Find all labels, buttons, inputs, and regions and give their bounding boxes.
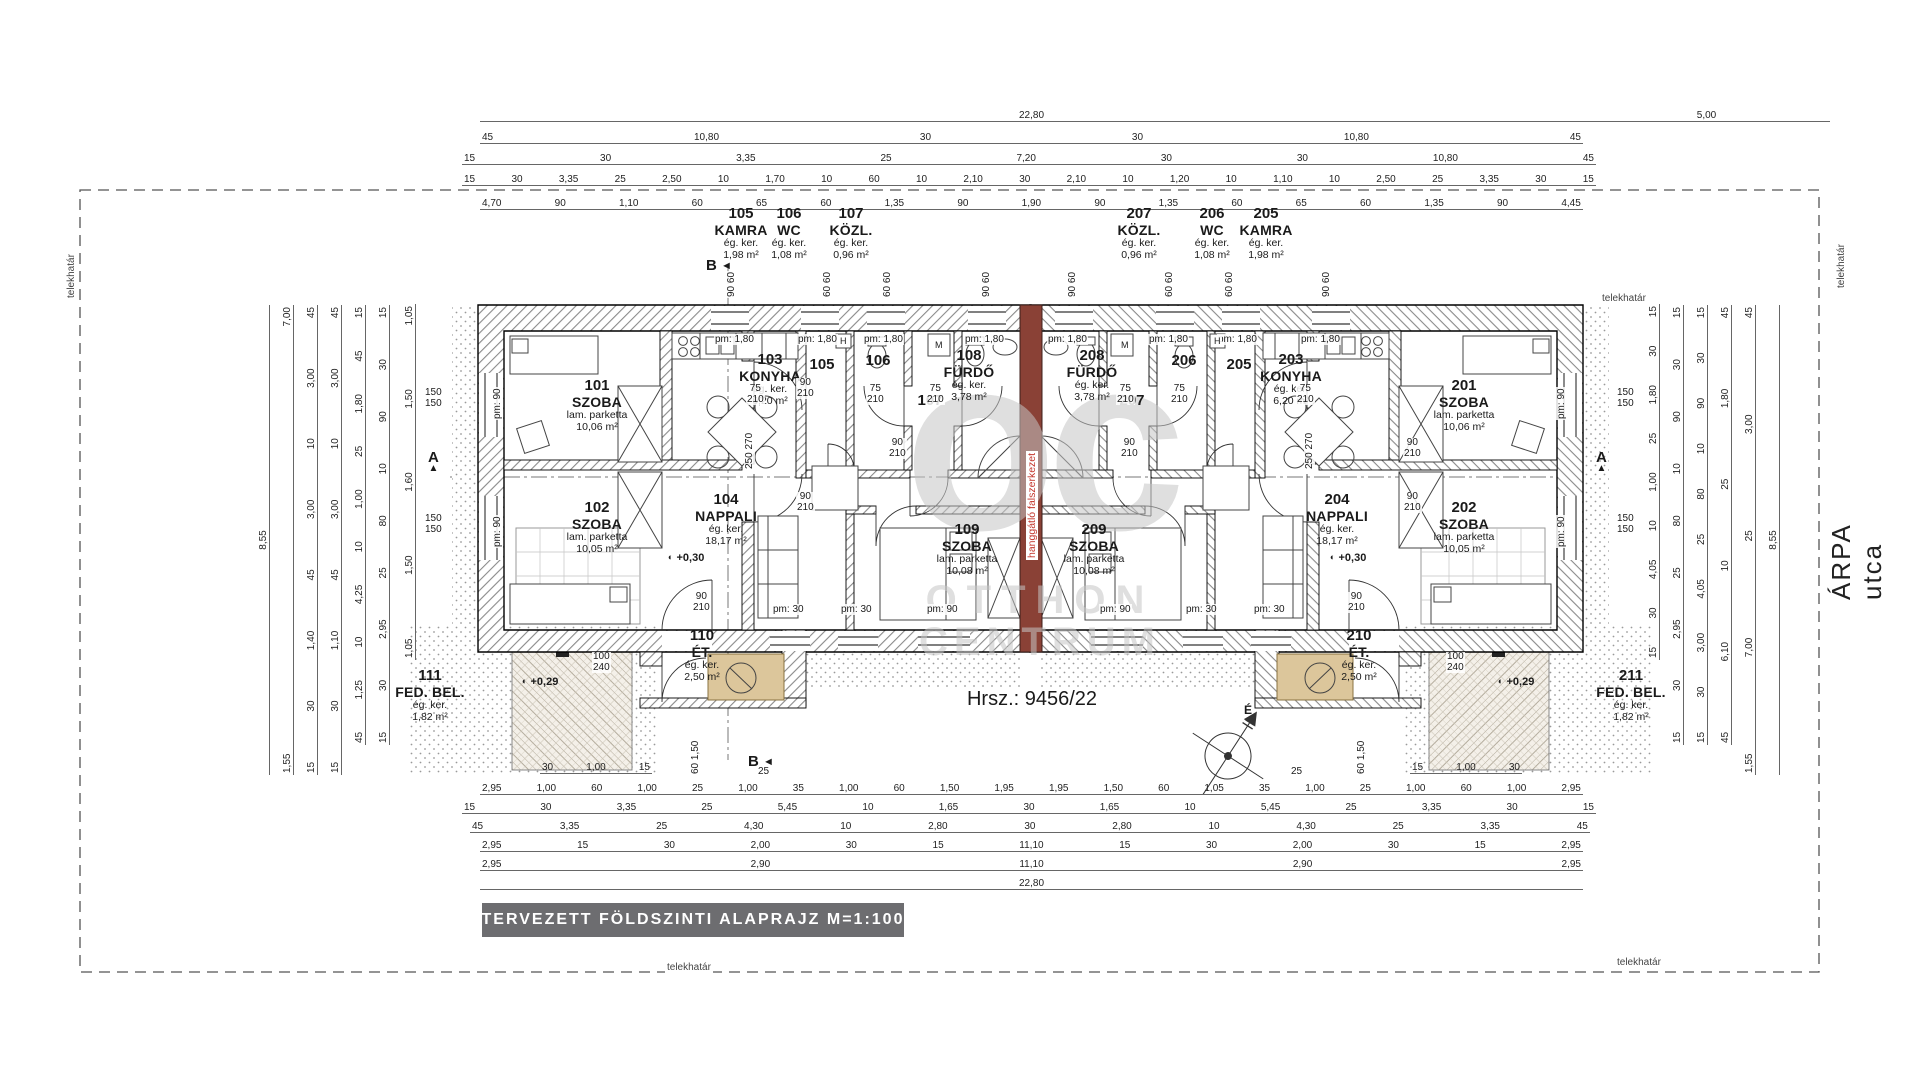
- dim-value: 35: [791, 783, 806, 794]
- level-mark: ◐ +0,30: [668, 552, 704, 564]
- dim-value: 45: [1744, 305, 1755, 320]
- dim-value: 30: [378, 678, 389, 693]
- level-mark: ◐ +0,29: [522, 676, 558, 688]
- dim-value: 1,00: [584, 762, 607, 773]
- door-size: 75210: [866, 384, 885, 405]
- dim-col-left-2: 7,001,55: [280, 305, 294, 775]
- door-size: 90210: [888, 438, 907, 459]
- dim-value: 1,80: [354, 392, 365, 415]
- dim-value: 2,95: [1672, 617, 1683, 640]
- dim-value: 90: [1092, 198, 1107, 209]
- dim-value: 4,25: [354, 583, 365, 606]
- parapet-tag: pm: 1,80: [1047, 334, 1088, 345]
- dim-value: 60: [690, 198, 705, 209]
- dim-value: 11,10: [1017, 859, 1045, 870]
- dim-col-right-5: 453,00257,001,55: [1742, 305, 1756, 775]
- dim-value: 1,70: [763, 174, 786, 185]
- dim-value: 25: [878, 153, 893, 164]
- dim-row-top-street: 5,00: [1583, 108, 1830, 122]
- parapet-tag: pm: 1,80: [797, 334, 838, 345]
- dim-value: 1,60: [404, 470, 415, 493]
- dim-value: 30: [1696, 685, 1707, 700]
- dim-value: 45: [354, 349, 365, 364]
- dim-value: 15: [354, 305, 365, 320]
- room-label-204: 204NAPPALI ég. ker.18,17 m²: [1306, 492, 1368, 548]
- parapet-tag: pm: 90: [1556, 387, 1567, 420]
- dim-value: 5,45: [776, 802, 799, 813]
- dim-value: 60: [1459, 783, 1474, 794]
- boundary-label: telekhatár: [1600, 293, 1648, 304]
- dim-value: 10: [354, 539, 365, 554]
- parapet-tag: pm: 1,80: [1300, 334, 1341, 345]
- dim-value: 1,20: [1168, 174, 1191, 185]
- door-size: 90210: [1403, 438, 1422, 459]
- dim-row-bottom-1: 2,951,00601,00251,00351,00601,501,951,95…: [480, 781, 1583, 795]
- dim-value: 10: [1696, 441, 1707, 456]
- room-chip-205: 205: [1226, 356, 1251, 373]
- dim-value: 30: [1672, 678, 1683, 693]
- dim-value: 3,35: [1478, 174, 1501, 185]
- dim-value: 10: [306, 436, 317, 451]
- dim-value: 10,80: [692, 132, 721, 143]
- dim-value: 15: [1648, 645, 1659, 660]
- dim-value: 10: [1207, 821, 1222, 832]
- table-dim: 250 270: [744, 432, 755, 470]
- room-label-208: 208FÜRDŐ ég. ker.3,78 m²: [1067, 348, 1118, 404]
- dim-value: 30: [598, 153, 613, 164]
- dim-value: 1,55: [1744, 752, 1755, 775]
- door-size: 90210: [1120, 438, 1139, 459]
- dim-value: 25: [654, 821, 669, 832]
- dim-value: 1,50: [404, 387, 415, 410]
- dim-value: 7,00: [1744, 636, 1755, 659]
- dim-value: 90: [1672, 409, 1683, 424]
- dim-value: 45: [1568, 132, 1583, 143]
- dim-value: 1,50: [938, 783, 961, 794]
- dim-value: 3,00: [1744, 412, 1755, 435]
- dim-value: 2,80: [926, 821, 949, 832]
- dim-value: 15: [378, 730, 389, 745]
- appliance-m: M: [934, 340, 944, 350]
- dim-value: 10: [914, 174, 929, 185]
- parapet-tag: pm: 1,80: [714, 334, 755, 345]
- dim-value: 15: [462, 174, 477, 185]
- dim-value: 30: [1648, 605, 1659, 620]
- dim-value: 30: [1130, 132, 1145, 143]
- dim-col-right-4: 451,8025106,1045: [1718, 305, 1732, 745]
- dim-value: 25: [1358, 783, 1373, 794]
- boundary-label: telekhatár: [665, 962, 713, 973]
- dim-row-top-5: 4,70901,106065601,35901,90901,356065601,…: [480, 196, 1583, 210]
- dim-value: 8,55: [258, 528, 269, 551]
- dim-value: 60: [1156, 783, 1171, 794]
- dim-value: 15: [462, 153, 477, 164]
- parapet-tag: pm: 30: [1253, 604, 1286, 615]
- dim-value: 2,95: [480, 783, 503, 794]
- parapet-tag: pm: 90: [492, 387, 503, 420]
- window-dim-pair: 90 60: [726, 271, 737, 298]
- dim-col-right-2: 1530901080252,953015: [1670, 305, 1684, 745]
- dim-value: 1,10: [330, 629, 341, 652]
- dim-value: 60: [1358, 198, 1373, 209]
- top-label-107: 107KÖZL. ég. ker.0,96 m²: [830, 206, 873, 262]
- window-size: 150150: [424, 388, 443, 409]
- dim-float: 25: [1290, 766, 1303, 777]
- dim-value: 1,00: [736, 783, 759, 794]
- dim-value: 15: [931, 840, 946, 851]
- dim-value: 45: [1581, 153, 1596, 164]
- north-compass: [1168, 690, 1292, 818]
- dim-value: 1,00: [1404, 783, 1427, 794]
- window-dim-pair: 60 60: [1164, 271, 1175, 298]
- dim-value: 2,50: [660, 174, 683, 185]
- dim-value: 1,00: [1505, 783, 1528, 794]
- dim-value: 25: [613, 174, 628, 185]
- dim-value: 1,25: [354, 678, 365, 701]
- dim-value: 2,80: [1110, 821, 1133, 832]
- drawing-title: TERVEZETT FÖLDSZINTI ALAPRAJZ M=1:100: [482, 903, 904, 937]
- dim-value: 6,10: [1720, 640, 1731, 663]
- parapet-tag: pm: 30: [772, 604, 805, 615]
- dim-row-top-total: 22,80: [480, 108, 1583, 122]
- door-size: 100240: [592, 652, 611, 673]
- section-marker-a-left: A▲: [428, 450, 439, 473]
- dim-value: 4,30: [1294, 821, 1317, 832]
- dim-value: 30: [1505, 802, 1520, 813]
- dim-value: 10: [1672, 461, 1683, 476]
- dim-value: 1,40: [306, 629, 317, 652]
- dim-value: 15: [575, 840, 590, 851]
- room-label-104: 104NAPPALI ég. ker.18,17 m²: [695, 492, 757, 548]
- step-dim: 60 1,50: [690, 740, 701, 775]
- parapet-tag: pm: 1,80: [1217, 334, 1258, 345]
- floor-plan-canvas: oc OTTHON CENTRUM 101SZOBA lam. parketta…: [0, 0, 1920, 1070]
- door-size: 75210: [926, 384, 945, 405]
- dim-value: 15: [1117, 840, 1132, 851]
- dim-value: 30: [540, 762, 555, 773]
- dim-value: 1,05: [404, 637, 415, 660]
- dim-value: 3,00: [306, 366, 317, 389]
- dim-value: 45: [480, 132, 495, 143]
- dim-value: 15: [378, 305, 389, 320]
- dim-value: 1,50: [1102, 783, 1125, 794]
- dim-value: 90: [955, 198, 970, 209]
- level-mark: ◐ +0,29: [1498, 676, 1534, 688]
- dim-value: 30: [1696, 350, 1707, 365]
- dim-row-bottom-5: 2,952,9011,102,902,95: [480, 857, 1583, 871]
- section-marker-b-top: B ◄: [706, 258, 732, 273]
- room-chip-106: 106: [865, 352, 890, 369]
- dim-value: 30: [1533, 174, 1548, 185]
- dim-col-right-6: 8,55: [1766, 305, 1780, 775]
- window-size: 150150: [1616, 388, 1635, 409]
- dim-value: 10,80: [1431, 153, 1460, 164]
- parapet-tag: pm: 1,80: [1148, 334, 1189, 345]
- dim-value: 2,00: [749, 840, 772, 851]
- dim-value: 15: [1672, 730, 1683, 745]
- dim-value: 1,35: [883, 198, 906, 209]
- dim-value: 15: [1473, 840, 1488, 851]
- dim-row-top-2: 4510,80303010,8045: [480, 130, 1583, 144]
- dim-value: 1,95: [992, 783, 1015, 794]
- dim-value: 15: [637, 762, 652, 773]
- room-label-110: 110ÉT. ég. ker.2,50 m²: [684, 628, 720, 684]
- boundary-label: telekhatár: [1615, 957, 1663, 968]
- dim-value: 1,35: [1422, 198, 1445, 209]
- room-label-102: 102SZOBA lam. parketta10,05 m²: [567, 500, 628, 556]
- dim-value: 15: [1581, 802, 1596, 813]
- parapet-tag: pm: 1,80: [964, 334, 1005, 345]
- dim-value: 3,00: [330, 366, 341, 389]
- window-dim-pair: 60 60: [1224, 271, 1235, 298]
- dim-value: 2,10: [961, 174, 984, 185]
- dim-value: 10: [838, 821, 853, 832]
- dim-col-left-3: 453,00103,00451,403015: [304, 305, 318, 775]
- dim-value: 25: [1720, 477, 1731, 492]
- dim-value: 15: [1648, 304, 1659, 319]
- dim-value: 30: [1672, 357, 1683, 372]
- dim-value: 30: [1648, 344, 1659, 359]
- dim-value: 30: [509, 174, 524, 185]
- dim-value: 10,80: [1342, 132, 1371, 143]
- dim-value: 3,00: [1696, 631, 1707, 654]
- dim-value: 3,00: [330, 498, 341, 521]
- room-label-202: 202SZOBA lam. parketta10,05 m²: [1434, 500, 1495, 556]
- door-size: 75210: [1170, 384, 1189, 405]
- dim-value: 4,45: [1559, 198, 1582, 209]
- dim-row-bottom-4: 2,9515302,00301511,1015302,0030152,95: [480, 838, 1583, 852]
- dim-value: 15: [462, 802, 477, 813]
- dim-value: 1,05: [1202, 783, 1225, 794]
- dim-value: 10: [1182, 802, 1197, 813]
- dim-value: 10: [354, 635, 365, 650]
- dim-value: 25: [354, 444, 365, 459]
- top-label-205: 205KAMRA ég. ker.1,98 m²: [1239, 206, 1292, 262]
- dim-value: 1,00: [1648, 470, 1659, 493]
- door-size: 100240: [1446, 652, 1465, 673]
- dim-value: 2,10: [1065, 174, 1088, 185]
- room-label-109: 109SZOBA lam. parketta10,08 m²: [937, 522, 998, 578]
- dim-value: 45: [330, 567, 341, 582]
- dim-value: 22,80: [1017, 878, 1046, 889]
- dim-value: 1,80: [1720, 387, 1731, 410]
- window-size: 150150: [1616, 514, 1635, 535]
- dim-value: 25: [1648, 431, 1659, 446]
- north-letter: É: [1244, 704, 1252, 716]
- parcel-number: Hrsz.: 9456/22: [967, 688, 1097, 711]
- dim-value: 30: [662, 840, 677, 851]
- dim-value: 1,50: [404, 553, 415, 576]
- door-size: 90210: [692, 592, 711, 613]
- parapet-tag: pm: 90: [492, 515, 503, 548]
- dim-value: 45: [1720, 730, 1731, 745]
- dim-value: 1,90: [1020, 198, 1043, 209]
- door-size: 90210: [796, 378, 815, 399]
- dim-value: 4,05: [1648, 558, 1659, 581]
- dim-value: 10: [1327, 174, 1342, 185]
- dim-value: 25: [1344, 802, 1359, 813]
- dim-value: 15: [1410, 762, 1425, 773]
- dim-value: 10: [1224, 174, 1239, 185]
- dim-value: 10: [819, 174, 834, 185]
- dim-value: 3,35: [615, 802, 638, 813]
- dim-value: 15: [306, 760, 317, 775]
- dim-col-left-7: 1,051,501,601,501,05: [402, 304, 416, 660]
- dim-value: 10: [1648, 518, 1659, 533]
- dim-value: 2,90: [749, 859, 772, 870]
- dim-value: 45: [306, 305, 317, 320]
- dim-value: 25: [1430, 174, 1445, 185]
- parapet-tag: pm: 30: [840, 604, 873, 615]
- dim-value: 1,65: [937, 802, 960, 813]
- dim-value: 80: [1696, 486, 1707, 501]
- window-dim-pair: 60 60: [882, 271, 893, 298]
- dim-value: 10: [1120, 174, 1135, 185]
- dim-value: 10: [378, 461, 389, 476]
- parapet-tag: pm: 90: [926, 604, 959, 615]
- dim-value: 2,95: [1559, 840, 1582, 851]
- dim-value: 80: [378, 513, 389, 528]
- dim-value: 10: [1720, 558, 1731, 573]
- dim-value: 30: [918, 132, 933, 143]
- window-dim-pair: 90 60: [1067, 271, 1078, 298]
- dim-row-bottom-3: 453,35254,30102,80302,80104,30253,3545: [470, 819, 1590, 833]
- dim-value: 22,80: [1017, 110, 1046, 121]
- dim-value: 1,00: [535, 783, 558, 794]
- dim-value: 90: [1495, 198, 1510, 209]
- dim-value: 7,20: [1014, 153, 1037, 164]
- dim-value: 3,00: [306, 498, 317, 521]
- dim-value: 30: [1295, 153, 1310, 164]
- dim-value: 8,55: [1768, 528, 1779, 551]
- dim-value: 30: [1507, 762, 1522, 773]
- dim-col-left-5: 15451,80251,00104,25101,2545: [352, 305, 366, 745]
- dim-value: 15: [1696, 730, 1707, 745]
- door-size: 90210: [1403, 492, 1422, 513]
- dim-value: 15: [1672, 305, 1683, 320]
- level-mark: ◐ +0,30: [1330, 552, 1366, 564]
- dim-value: 45: [330, 305, 341, 320]
- dim-value: 25: [1391, 821, 1406, 832]
- top-label-207: 207KÖZL. ég. ker.0,96 m²: [1118, 206, 1161, 262]
- dim-value: 25: [1744, 528, 1755, 543]
- dim-value: 1,00: [354, 487, 365, 510]
- door-size: 75210: [746, 384, 765, 405]
- dim-value: 4,70: [480, 198, 503, 209]
- boundary-label: telekhatár: [1836, 242, 1847, 290]
- dim-value: 25: [1672, 565, 1683, 580]
- door-size: 75210: [1116, 384, 1135, 405]
- dim-value: 3,35: [558, 821, 581, 832]
- dim-value: 11,10: [1017, 840, 1045, 851]
- top-label-206: 206WC ég. ker.1,08 m²: [1194, 206, 1230, 262]
- dim-value: 2,90: [1291, 859, 1314, 870]
- dim-value: 1,00: [837, 783, 860, 794]
- dim-value: 1,65: [1098, 802, 1121, 813]
- door-size: 75210: [1296, 384, 1315, 405]
- dim-value: 2,95: [480, 859, 503, 870]
- room-label-211: 211FED. BEL. ég. ker.1,82 m²: [1596, 668, 1665, 724]
- boundary-label: telekhatár: [66, 252, 77, 300]
- section-marker-a-right: A▲: [1596, 450, 1607, 473]
- room-label-201: 201SZOBA lam. parketta10,06 m²: [1434, 378, 1495, 434]
- party-wall-label: hanggátló falszerkezet: [1026, 451, 1038, 560]
- dim-value: 45: [470, 821, 485, 832]
- top-label-106: 106WC ég. ker.1,08 m²: [771, 206, 807, 262]
- dim-value: 45: [354, 730, 365, 745]
- dim-value: 1,00: [1303, 783, 1326, 794]
- dim-value: 15: [1581, 174, 1596, 185]
- dim-col-left-4: 453,00103,00451,103015: [328, 305, 342, 775]
- dim-value: 80: [1672, 513, 1683, 528]
- dim-col-left-6: 1530901080252,953015: [376, 305, 390, 745]
- dim-value: 1,95: [1047, 783, 1070, 794]
- parapet-tag: pm: 1,80: [863, 334, 904, 345]
- dim-value: 10: [330, 436, 341, 451]
- dim-value: 7,00: [282, 305, 293, 328]
- table-dim: 250 270: [1304, 432, 1315, 470]
- dim-value: 1,80: [1648, 383, 1659, 406]
- dim-value: 60: [867, 174, 882, 185]
- dim-value: 25: [378, 565, 389, 580]
- dim-value: 45: [1575, 821, 1590, 832]
- dim-value: 10: [860, 802, 875, 813]
- window-dim-pair: 60 60: [822, 271, 833, 298]
- parapet-tag: pm: 90: [1099, 604, 1132, 615]
- parapet-tag: pm: 30: [1185, 604, 1218, 615]
- dim-value: 45: [1720, 305, 1731, 320]
- room-label-108: 108FÜRDŐ ég. ker.3,78 m²: [944, 348, 995, 404]
- dim-value: 25: [690, 783, 705, 794]
- dim-value: 30: [1386, 840, 1401, 851]
- dim-value: 3,35: [557, 174, 580, 185]
- dim-value: 2,50: [1374, 174, 1397, 185]
- dim-value: 30: [330, 698, 341, 713]
- dim-col-left-1: 8,55: [256, 305, 270, 775]
- room-label-210: 210ÉT. ég. ker.2,50 m²: [1341, 628, 1377, 684]
- dim-value: 30: [844, 840, 859, 851]
- dim-value: 10: [716, 174, 731, 185]
- dim-value: 3,35: [734, 153, 757, 164]
- dim-value: 1,10: [1271, 174, 1294, 185]
- dim-value: 30: [306, 698, 317, 713]
- door-size: 90210: [796, 492, 815, 513]
- dim-value: 5,45: [1259, 802, 1282, 813]
- dim-value: 5,00: [1695, 110, 1718, 121]
- dim-col-right-1: 15301,80251,00104,053015: [1646, 304, 1660, 660]
- room-label-101: 101SZOBA lam. parketta10,06 m²: [567, 378, 628, 434]
- room-chip-206: 206: [1171, 352, 1196, 369]
- room-label-111: 111FED. BEL. ég. ker.1,82 m²: [395, 668, 464, 724]
- dim-value: 90: [553, 198, 568, 209]
- dim-value: 90: [378, 409, 389, 424]
- dim-value: 30: [378, 357, 389, 372]
- dim-value: 25: [699, 802, 714, 813]
- dim-row-bottom-total: 22,80: [480, 876, 1583, 890]
- dim-value: 4,30: [742, 821, 765, 832]
- dim-value: 30: [1017, 174, 1032, 185]
- dim-value: 1,55: [282, 752, 293, 775]
- dim-value: 30: [538, 802, 553, 813]
- dim-value: 60: [589, 783, 604, 794]
- dim-row-bottom-terrace-left: 301,0015: [540, 760, 652, 774]
- appliance-m: M: [1120, 340, 1130, 350]
- window-dim-pair: 90 60: [981, 271, 992, 298]
- dim-value: 30: [1159, 153, 1174, 164]
- dim-value: 2,95: [480, 840, 503, 851]
- dim-row-bottom-terrace-right: 151,0030: [1410, 760, 1522, 774]
- dim-value: 35: [1257, 783, 1272, 794]
